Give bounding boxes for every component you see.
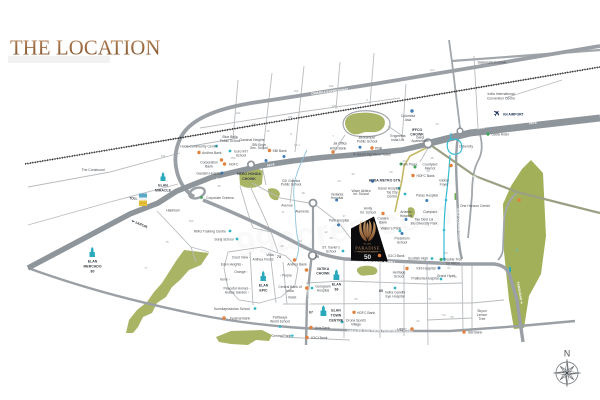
svg-text:ELAN: ELAN — [88, 260, 98, 264]
svg-text:HDFC Bank: HDFC Bank — [357, 311, 375, 315]
svg-text:54: 54 — [444, 251, 448, 255]
svg-text:Public School: Public School — [357, 140, 378, 144]
svg-text:101: 101 — [252, 122, 257, 126]
svg-text:102: 102 — [236, 111, 241, 115]
svg-text:48: 48 — [301, 191, 305, 195]
svg-text:HDFC: HDFC — [397, 328, 407, 332]
svg-text:Apartments: Apartments — [411, 139, 429, 143]
svg-text:Public School: Public School — [220, 139, 241, 143]
svg-text:110: 110 — [430, 68, 435, 72]
svg-text:Suraj School: Suraj School — [214, 238, 233, 242]
svg-text:Compact: Compact — [423, 210, 437, 214]
svg-text:HERO HONDA: HERO HONDA — [237, 172, 261, 176]
svg-text:45: 45 — [329, 236, 333, 240]
svg-text:62: 62 — [416, 319, 420, 323]
svg-text:103: 103 — [294, 89, 299, 93]
svg-text:Leela Hotel: Leela Hotel — [492, 133, 509, 137]
svg-text:✦ Gould Signature Tower: ✦ Gould Signature Tower — [353, 153, 392, 157]
svg-text:Anthea Floors: Anthea Floors — [252, 258, 273, 262]
svg-text:Sec. School: Sec. School — [250, 146, 268, 150]
svg-text:64: 64 — [442, 313, 446, 317]
svg-text:67: 67 — [309, 311, 313, 315]
svg-text:HDFC Bank: HDFC Bank — [417, 174, 435, 178]
svg-text:N: N — [564, 349, 570, 359]
svg-text:Pratiksha Hospital: Pratiksha Hospital — [411, 277, 439, 281]
svg-text:PNB: PNB — [375, 147, 383, 151]
svg-text:29: 29 — [426, 169, 430, 173]
svg-text:23: 23 — [435, 122, 439, 126]
svg-text:School: School — [236, 154, 247, 158]
svg-text:by Hilton: by Hilton — [446, 262, 459, 266]
svg-text:Paras Hospital: Paras Hospital — [416, 194, 438, 198]
svg-text:IFFCO: IFFCO — [412, 128, 423, 132]
svg-text:Haldiram: Haldiram — [166, 209, 180, 213]
svg-text:NH-8: NH-8 — [310, 151, 318, 156]
svg-text:Autare Garden ◦: Autare Garden ◦ — [225, 291, 250, 295]
svg-text:VATIKA: VATIKA — [317, 267, 330, 271]
svg-text:Axis Bank: Axis Bank — [315, 326, 330, 330]
svg-text:ELAN: ELAN — [158, 184, 168, 188]
svg-text:Corporate Greens: Corporate Greens — [206, 196, 233, 200]
svg-text:55: 55 — [450, 315, 454, 319]
svg-text:HUDA METRO STN.: HUDA METRO STN. — [369, 179, 402, 183]
svg-text:Andhra Bank: Andhra Bank — [287, 263, 307, 267]
svg-text:Bank: Bank — [379, 221, 387, 225]
svg-text:Hospital: Hospital — [331, 196, 343, 200]
svg-text:Central Park: Central Park — [272, 334, 291, 338]
svg-text:33: 33 — [337, 179, 341, 183]
svg-text:⚘: ⚘ — [515, 248, 519, 253]
svg-text:RMG Training Centre: RMG Training Centre — [194, 230, 226, 234]
svg-text:76: 76 — [165, 240, 169, 244]
svg-text:HDFC: HDFC — [229, 163, 239, 167]
svg-text:Kunskapsskolan School: Kunskapsskolan School — [214, 307, 250, 311]
svg-text:75: 75 — [267, 190, 271, 194]
svg-text:Vista ◦: Vista ◦ — [266, 253, 276, 257]
svg-text:66: 66 — [354, 297, 358, 301]
svg-text:School: School — [397, 241, 408, 245]
svg-text:MIRACLE: MIRACLE — [155, 189, 172, 193]
svg-text:Hospital: Hospital — [317, 289, 329, 293]
svg-text:CHOWK: CHOWK — [242, 177, 256, 181]
svg-text:76: 76 — [231, 196, 235, 200]
svg-text:Convention Centre: Convention Centre — [487, 97, 515, 101]
svg-text:75A: 75A — [188, 219, 193, 223]
svg-text:Andhra Bank: Andhra Bank — [202, 151, 222, 155]
svg-text:15-1: 15-1 — [294, 143, 300, 147]
svg-text:Scottish High: Scottish High — [408, 257, 428, 261]
svg-text:70: 70 — [315, 255, 319, 259]
svg-text:Huda Community Centre: Huda Community Centre — [180, 145, 217, 149]
svg-text:32: 32 — [351, 172, 355, 176]
svg-text:Kirti Hospital: Kirti Hospital — [416, 267, 435, 271]
svg-text:Int. School: Int. School — [353, 192, 369, 196]
svg-text:16A: 16A — [230, 156, 235, 160]
svg-text:Public School: Public School — [281, 183, 302, 187]
svg-text:49: 49 — [280, 244, 284, 248]
svg-text:CHOWK: CHOWK — [316, 272, 330, 276]
svg-text:28: 28 — [430, 156, 434, 160]
svg-text:104: 104 — [161, 154, 166, 158]
svg-text:Orange ◦: Orange ◦ — [234, 270, 248, 274]
svg-text:MERCADO: MERCADO — [83, 265, 101, 269]
svg-text:GOLF COURSE ROAD (EXTN.): GOLF COURSE ROAD (EXTN.) — [349, 260, 395, 264]
svg-text:India Ltd.: India Ltd. — [391, 138, 405, 142]
svg-text:Gautam Hospital: Gautam Hospital — [196, 172, 221, 176]
svg-text:66: 66 — [335, 288, 339, 292]
svg-text:65: 65 — [379, 289, 383, 293]
svg-text:AXIS Bank: AXIS Bank — [330, 147, 347, 151]
svg-text:36: 36 — [217, 184, 221, 188]
svg-text:Irene ◦: Irene ◦ — [220, 278, 231, 282]
svg-text:73: 73 — [277, 255, 281, 259]
svg-text:ELAN: ELAN — [331, 309, 341, 313]
svg-text:Tree: Tree — [479, 317, 486, 321]
svg-text:Int. School: Int. School — [360, 211, 376, 215]
svg-text:Asia: Asia — [405, 118, 412, 122]
svg-text:School: School — [394, 275, 405, 279]
svg-text:58: 58 — [453, 275, 457, 279]
svg-text:School: School — [326, 250, 337, 254]
svg-text:Cybercity: Cybercity — [459, 145, 473, 149]
svg-text:42: 42 — [324, 230, 328, 234]
svg-text:IGI AIRPORT: IGI AIRPORT — [503, 113, 525, 117]
svg-text:Village: Village — [351, 323, 361, 327]
svg-text:India International: India International — [488, 92, 515, 96]
svg-text:Jal Office: Jal Office — [333, 142, 347, 146]
svg-text:Crest View ◦: Crest View ◦ — [232, 256, 251, 260]
svg-text:EPIC: EPIC — [259, 289, 268, 293]
svg-text:NH-8: NH-8 — [529, 121, 537, 126]
svg-text:THE LOCATION: THE LOCATION — [10, 37, 161, 59]
svg-text:Hospital: Hospital — [400, 214, 412, 218]
svg-text:◦ Purple: ◦ Purple — [280, 274, 292, 278]
svg-text:Eden Heights ◦: Eden Heights ◦ — [221, 263, 244, 267]
svg-text:SBI Bank: SBI Bank — [273, 149, 287, 153]
svg-text:CENTRE: CENTRE — [329, 319, 344, 323]
svg-text:61: 61 — [428, 297, 432, 301]
svg-text:Diplomatic Enclave: Diplomatic Enclave — [478, 61, 507, 65]
svg-text:10: 10 — [266, 129, 270, 133]
svg-text:ELAN: ELAN — [332, 283, 342, 287]
svg-text:PARADISE: PARADISE — [355, 245, 379, 250]
svg-text:80: 80 — [91, 270, 95, 274]
svg-text:The Coralwood: The Coralwood — [82, 168, 105, 172]
svg-text:TOLL: TOLL — [129, 197, 137, 201]
svg-text:Federal Bank: Federal Bank — [230, 317, 250, 321]
svg-text:Alameda: Alameda — [295, 210, 308, 214]
svg-text:Eye Hospital: Eye Hospital — [385, 295, 404, 299]
svg-text:Park Hospital: Park Hospital — [329, 219, 349, 223]
svg-text:TOWN: TOWN — [331, 314, 342, 318]
svg-text:◦ Violet: ◦ Violet — [286, 296, 297, 300]
svg-text:30: 30 — [402, 159, 406, 163]
svg-text:ELAN: ELAN — [259, 284, 269, 288]
svg-text:77: 77 — [144, 266, 148, 270]
svg-text:25: 25 — [389, 170, 393, 174]
svg-text:SBI Bank: SBI Bank — [468, 331, 482, 335]
svg-text:106: 106 — [329, 84, 334, 88]
svg-text:Bank: Bank — [205, 165, 213, 169]
svg-text:Foyer: Foyer — [440, 183, 450, 187]
svg-text:ICICI Bank: ICICI Bank — [388, 254, 405, 258]
svg-text:71: 71 — [281, 210, 285, 214]
svg-text:One Horizon Center: One Horizon Center — [460, 204, 491, 208]
svg-text:Avenue: Avenue — [281, 204, 293, 208]
svg-text:53: 53 — [447, 266, 451, 270]
svg-text:105: 105 — [332, 104, 337, 108]
svg-text:India: India — [286, 289, 293, 293]
svg-text:Bio Diversity Park: Bio Diversity Park — [411, 222, 438, 226]
svg-text:Centre: Centre — [387, 195, 397, 199]
svg-text:World School: World School — [270, 320, 290, 324]
svg-text:Gaushal Heights: Gaushal Heights — [239, 138, 264, 142]
svg-text:47: 47 — [342, 214, 346, 218]
svg-text:Walter's Pride: Walter's Pride — [381, 227, 402, 231]
svg-text:104: 104 — [288, 115, 293, 119]
svg-text:43: 43 — [298, 239, 302, 243]
svg-text:ICICI Bank: ICICI Bank — [311, 336, 328, 340]
